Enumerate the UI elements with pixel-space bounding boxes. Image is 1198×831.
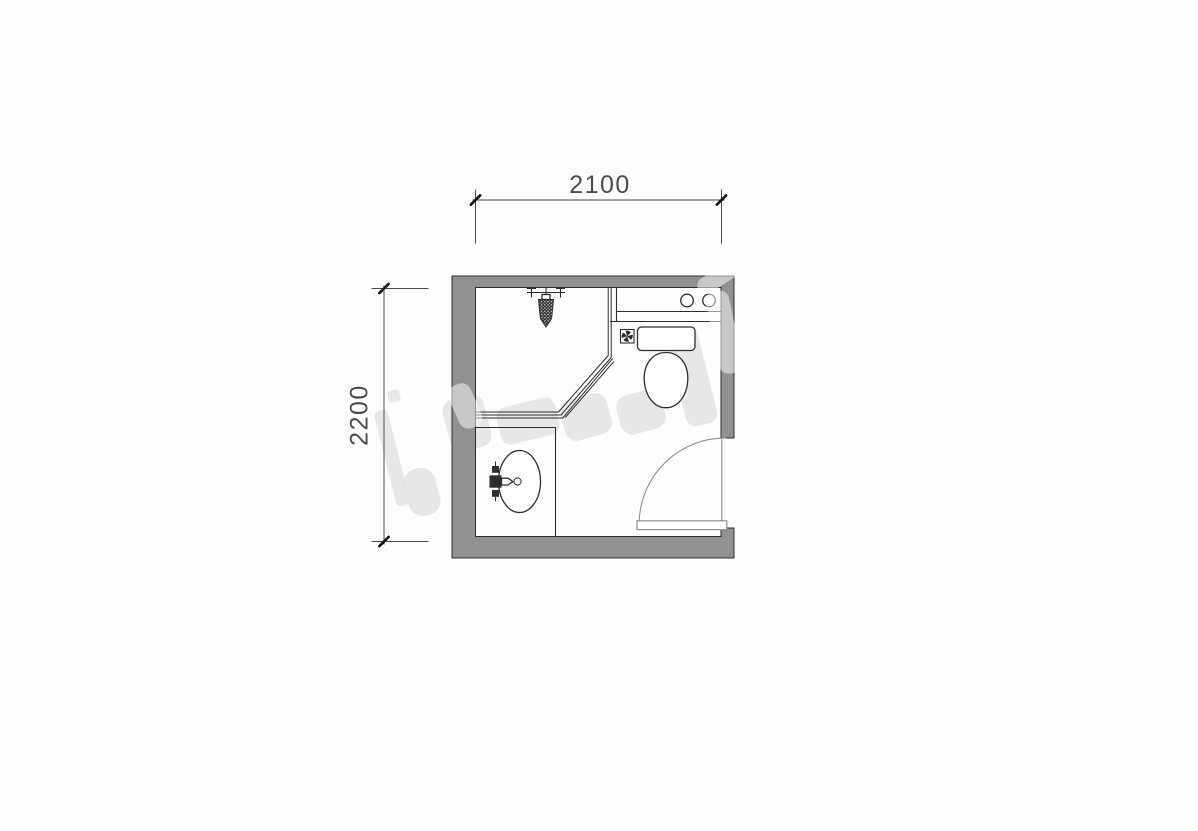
dimension-left: 2200	[346, 284, 429, 546]
floor-drain-icon	[621, 330, 635, 344]
counter-knob	[681, 294, 694, 307]
counter-knob	[703, 294, 716, 307]
door-swing-arc	[639, 438, 726, 521]
walls	[452, 276, 734, 558]
dimension-top: 2100	[471, 171, 726, 244]
faucet-handle	[492, 490, 499, 497]
shower-head	[539, 300, 554, 328]
toilet-bowl	[644, 353, 688, 408]
counter	[610, 288, 721, 322]
door-leaf	[637, 521, 727, 530]
dimension-height-label: 2200	[346, 384, 374, 446]
faucet-handle	[492, 466, 499, 473]
door	[637, 438, 727, 530]
dimension-width-label: 2100	[569, 171, 631, 199]
toilet-tank	[638, 327, 696, 351]
pipe-joint	[542, 295, 550, 300]
faucet-body	[490, 475, 502, 487]
glass-line	[476, 359, 613, 418]
drain-pinwheel	[622, 331, 633, 342]
floor-plan-canvas: 2100 2200	[0, 0, 1198, 831]
glass-line	[565, 362, 614, 418]
toilet	[638, 327, 696, 408]
shower-fixture-icon	[527, 288, 565, 328]
vanity	[476, 428, 556, 537]
floor-plan-svg: 2100 2200	[0, 0, 1198, 831]
